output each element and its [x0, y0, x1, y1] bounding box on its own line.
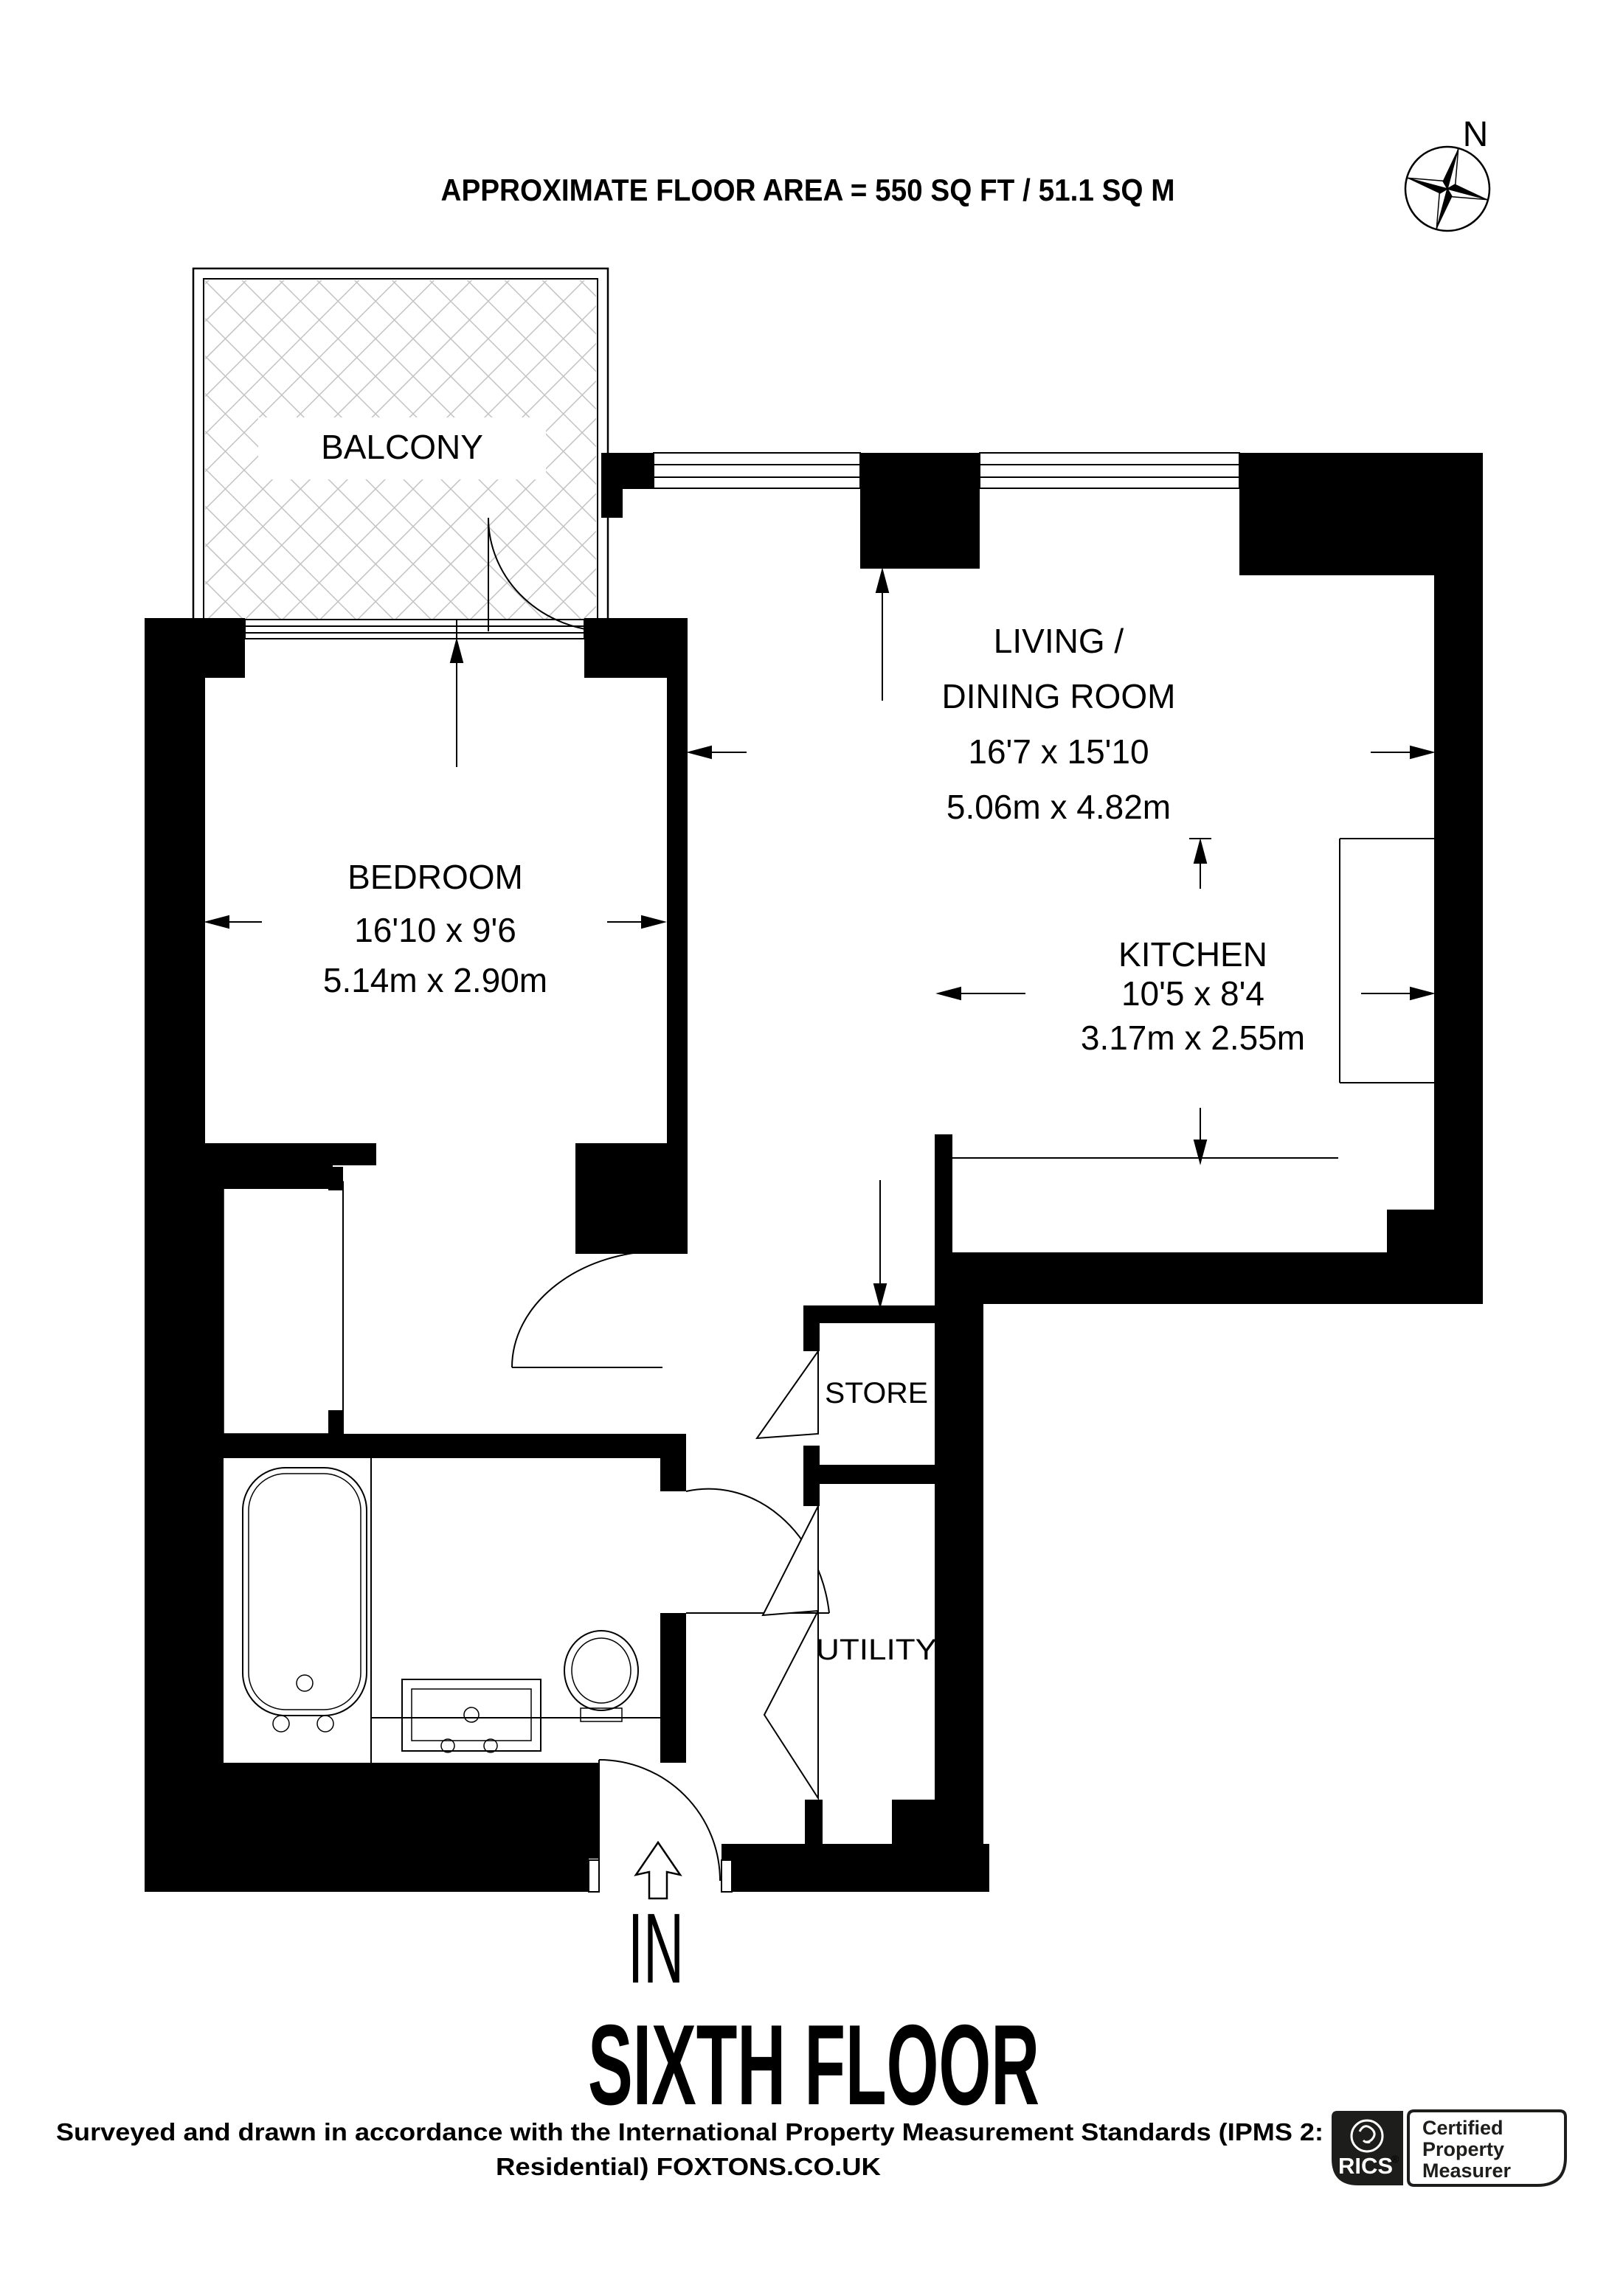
footer-line1: Surveyed and drawn in accordance with th… [56, 2118, 1323, 2146]
living-window-left [654, 453, 860, 488]
sink-vanity [402, 1679, 541, 1752]
rics-org-label: RICS [1338, 2153, 1393, 2179]
living-dims-metric: 5.06m x 4.82m [947, 788, 1171, 826]
bathroom-fixtures [243, 1458, 660, 1763]
compass-north-label: N [1463, 115, 1489, 154]
badge-line1: Certified [1422, 2117, 1503, 2139]
room-labels: BEDROOM 16'10 x 9'6 5.14m x 2.90m LIVING… [323, 622, 1305, 1666]
living-arrow-right [1371, 746, 1433, 758]
footer-line2: Residential) FOXTONS.CO.UK [496, 2153, 881, 2180]
closet [224, 1182, 343, 1434]
bathtub [243, 1468, 367, 1732]
store-bifold-door [757, 1351, 818, 1438]
bedroom-door [512, 1251, 662, 1367]
entry-label: IN [628, 1893, 684, 2004]
living-window-right [980, 453, 1239, 488]
living-label-line1: LIVING / [994, 622, 1124, 660]
living-label-line2: DINING ROOM [942, 677, 1176, 715]
rics-badge: RICS ® Certified Property Measurer [1332, 2111, 1565, 2185]
bedroom-arrow-right [607, 916, 664, 928]
floor-title: SIXTH FLOOR [588, 2001, 1039, 2129]
floor-area-text: APPROXIMATE FLOOR AREA = 550 SQ FT / 51.… [441, 173, 1175, 207]
compass-icon: N [1405, 115, 1489, 231]
store-label: STORE [825, 1377, 928, 1409]
toilet [564, 1631, 638, 1721]
kitchen-dims-metric: 3.17m x 2.55m [1081, 1019, 1305, 1057]
footer: Surveyed and drawn in accordance with th… [56, 2118, 1323, 2180]
kitchen-dims-imperial: 10'5 x 8'4 [1121, 974, 1264, 1013]
utility-label: UTILITY [816, 1634, 937, 1666]
living-arrow-down [874, 1180, 886, 1306]
entrance: IN [628, 1842, 684, 2004]
kitchen-arrow-up [1189, 839, 1211, 889]
kitchen-label: KITCHEN [1118, 935, 1267, 974]
balcony-area: BALCONY [193, 268, 608, 634]
badge-line2: Property [1422, 2138, 1504, 2160]
bedroom-label: BEDROOM [347, 858, 523, 896]
living-arrow-left [689, 746, 747, 758]
bedroom-dims-imperial: 16'10 x 9'6 [354, 911, 516, 949]
badge-line3: Measurer [1422, 2160, 1512, 2182]
balcony-label: BALCONY [321, 428, 483, 466]
bedroom-dims-metric: 5.14m x 2.90m [323, 961, 547, 999]
kitchen-arrow-down [1194, 1108, 1206, 1162]
bedroom-arrow-up [451, 640, 463, 767]
floorplan-svg: APPROXIMATE FLOOR AREA = 550 SQ FT / 51.… [0, 0, 1623, 2296]
kitchen-arrow-left [938, 988, 1025, 999]
rics-reg-mark: ® [1391, 2153, 1399, 2165]
kitchen-arrow-right [1361, 988, 1433, 999]
entry-arrow-icon [636, 1842, 680, 1898]
bedroom-arrow-left [207, 916, 262, 928]
living-arrow-up [876, 570, 888, 701]
utility-bifold-door [763, 1506, 818, 1798]
living-dims-imperial: 16'7 x 15'10 [968, 732, 1149, 771]
bedroom-window [245, 620, 584, 639]
floorplan-page: APPROXIMATE FLOOR AREA = 550 SQ FT / 51.… [0, 0, 1623, 2296]
